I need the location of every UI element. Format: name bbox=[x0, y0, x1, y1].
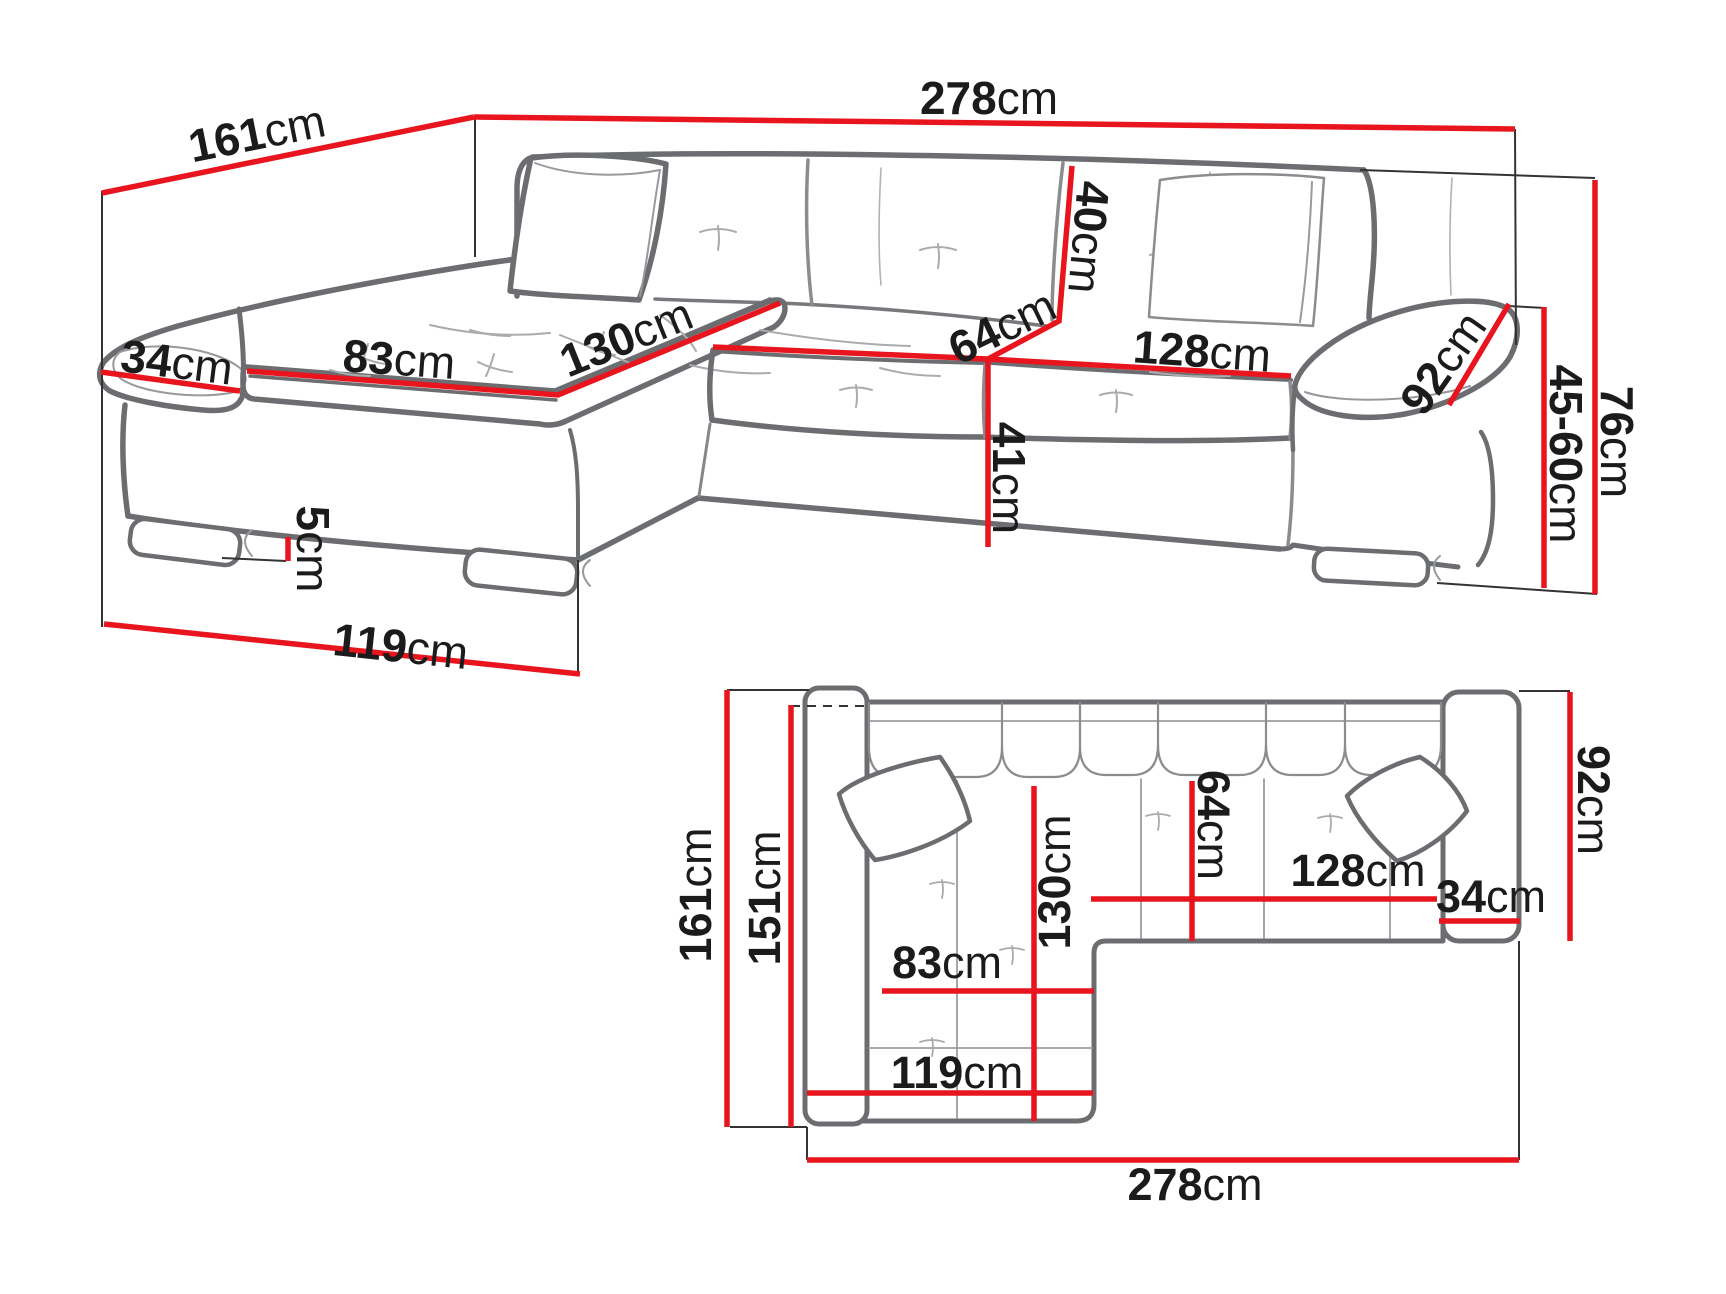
svg-text:76cm: 76cm bbox=[1591, 386, 1643, 499]
svg-text:128cm: 128cm bbox=[1131, 320, 1272, 382]
svg-text:64cm: 64cm bbox=[1188, 770, 1239, 880]
svg-text:45-60cm: 45-60cm bbox=[1540, 365, 1592, 544]
svg-text:83cm: 83cm bbox=[892, 937, 1002, 988]
svg-text:130cm: 130cm bbox=[1029, 814, 1080, 949]
svg-text:278cm: 278cm bbox=[1127, 1159, 1262, 1210]
svg-text:151cm: 151cm bbox=[739, 830, 790, 965]
svg-text:41cm: 41cm bbox=[983, 422, 1035, 535]
svg-text:119cm: 119cm bbox=[891, 1047, 1024, 1098]
svg-text:5cm: 5cm bbox=[287, 506, 339, 593]
svg-text:161cm: 161cm bbox=[670, 827, 721, 962]
svg-text:83cm: 83cm bbox=[341, 329, 457, 389]
svg-text:278cm: 278cm bbox=[920, 72, 1058, 124]
svg-text:34cm: 34cm bbox=[1436, 871, 1546, 922]
svg-text:92cm: 92cm bbox=[1568, 745, 1619, 855]
svg-text:40cm: 40cm bbox=[1058, 179, 1120, 296]
svg-text:128cm: 128cm bbox=[1290, 845, 1425, 896]
